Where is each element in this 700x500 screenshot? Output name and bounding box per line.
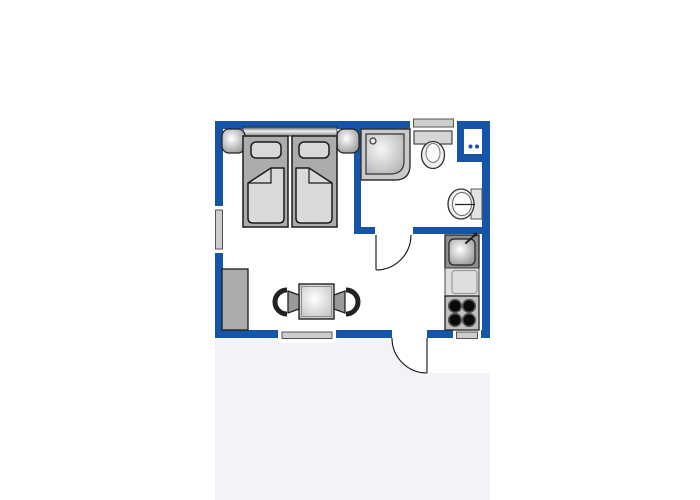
kitchen-sink-basin	[449, 239, 475, 265]
wardrobe	[222, 269, 248, 330]
shower	[361, 129, 410, 180]
floor-plan-page	[0, 0, 700, 500]
burner-icon	[449, 300, 462, 313]
stove	[445, 296, 479, 330]
floor-plan-drawing	[0, 0, 700, 500]
headboard	[243, 127, 337, 136]
window-bottom-wall	[278, 329, 336, 343]
shaft-niche	[464, 129, 482, 154]
chair-seat	[288, 291, 299, 313]
shaft-dot-icon	[469, 145, 473, 149]
shaft-dot-icon	[475, 145, 479, 149]
shower-drain-icon	[370, 138, 376, 144]
window-glass-icon	[457, 332, 478, 339]
window-kitchen-bottom	[453, 329, 481, 343]
door-gap	[392, 330, 427, 339]
dining-table	[299, 284, 334, 319]
kitchen-counter	[445, 268, 479, 296]
wall-bathroom-horizontal-left	[354, 227, 375, 234]
window-top-wall	[410, 117, 457, 131]
wall-right	[482, 121, 490, 338]
window-glass-icon	[282, 332, 332, 339]
burner-icon	[449, 314, 462, 327]
kitchen-tap-head	[474, 233, 478, 237]
nightstand-left	[222, 129, 245, 153]
window-left-wall	[213, 206, 224, 253]
burner-icon	[463, 300, 476, 313]
pillow-right	[299, 142, 329, 158]
toilet-bowl-inner	[426, 144, 440, 163]
burner-icon	[463, 314, 476, 327]
wall-shaft-bottom	[457, 154, 490, 162]
washbasin	[448, 189, 482, 219]
wall-bathroom-horizontal-right	[413, 227, 482, 234]
kitchenette	[445, 233, 479, 331]
chair-seat	[334, 291, 345, 313]
pillow-left	[251, 142, 281, 158]
ventilation-shaft	[464, 129, 482, 154]
window-glass-icon	[216, 210, 223, 249]
window-glass-icon	[414, 119, 454, 127]
wall-bottom	[215, 330, 490, 338]
nightstand-right	[337, 129, 359, 153]
